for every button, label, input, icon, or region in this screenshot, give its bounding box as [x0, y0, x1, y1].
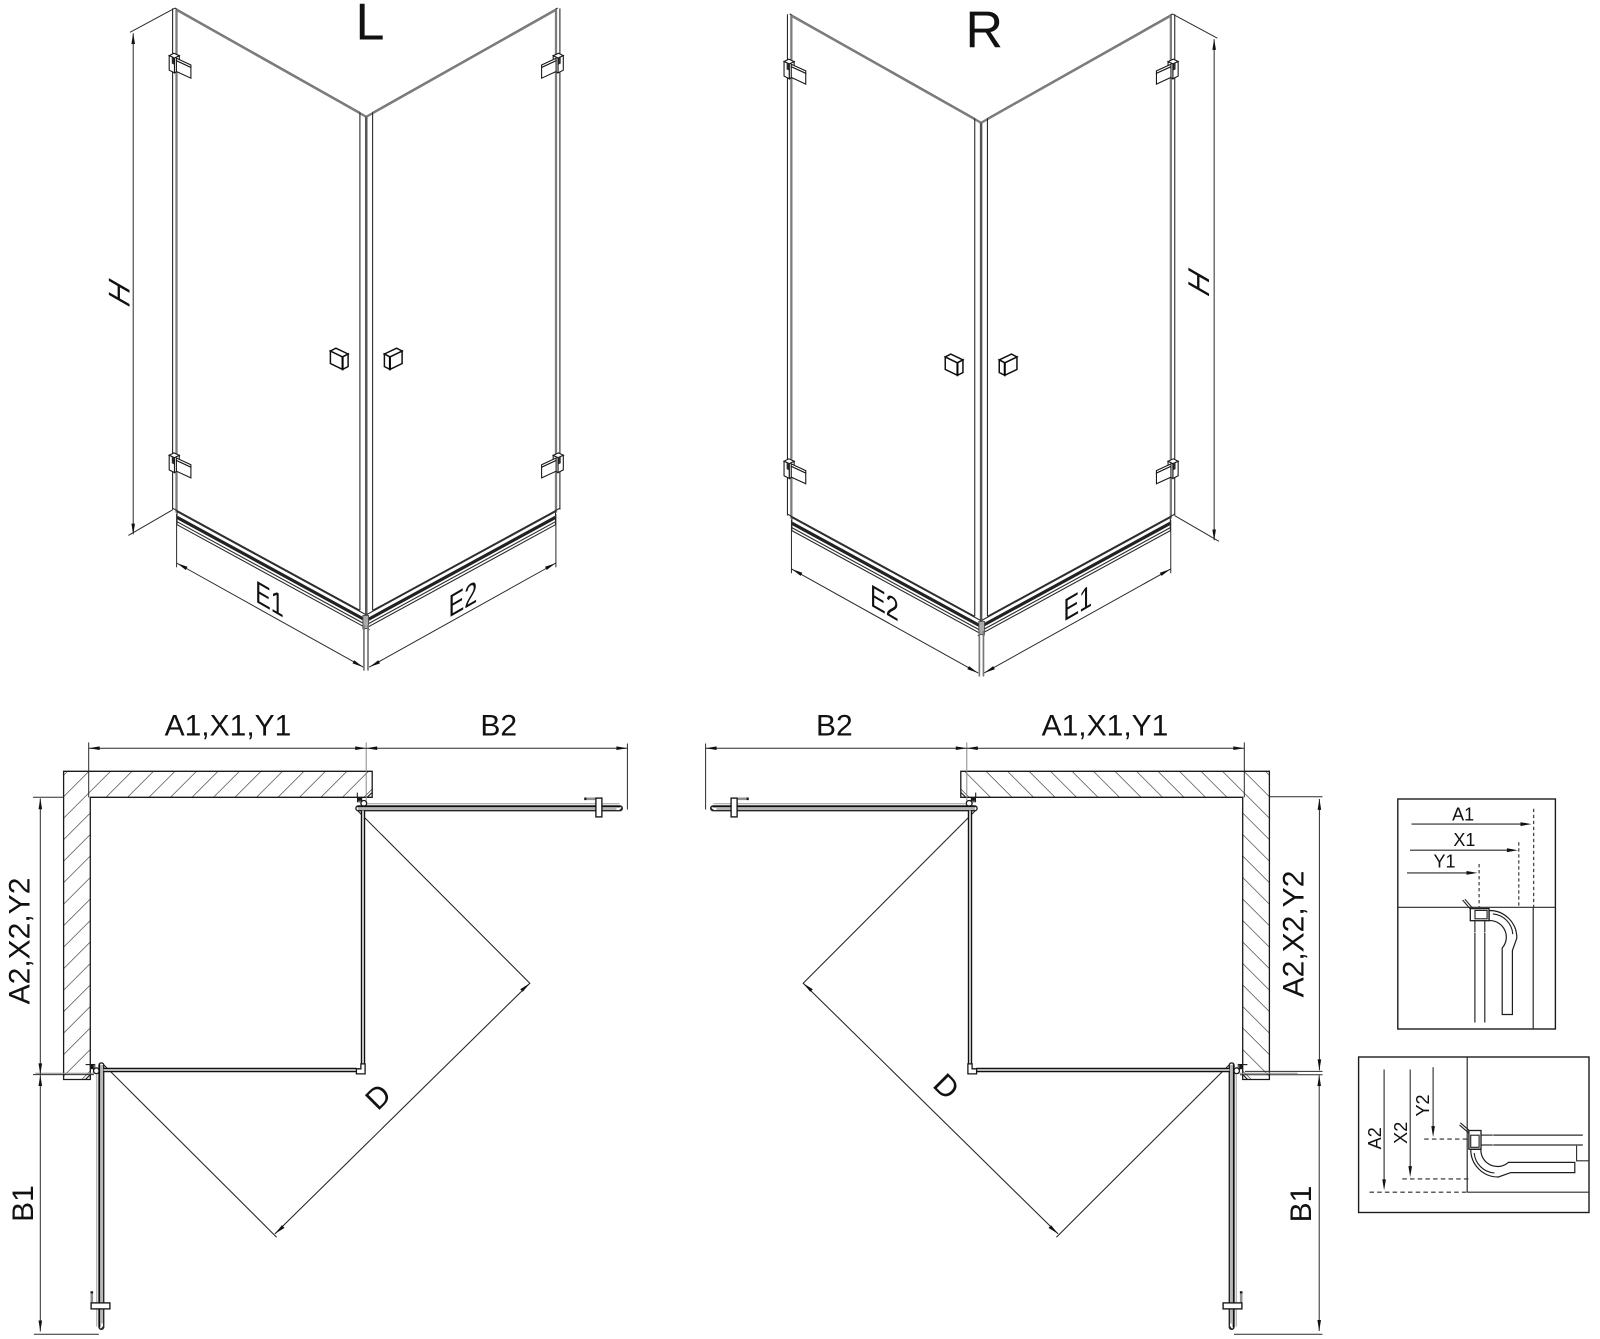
svg-text:Y1: Y1: [1433, 851, 1455, 871]
svg-text:R: R: [966, 2, 1004, 60]
svg-text:D: D: [927, 1068, 966, 1107]
svg-text:X1: X1: [1453, 830, 1475, 850]
svg-text:A2: A2: [1365, 1127, 1385, 1149]
svg-text:A1,X1,Y1: A1,X1,Y1: [165, 710, 292, 743]
svg-text:B2: B2: [816, 710, 853, 743]
svg-text:A2,X2,Y2: A2,X2,Y2: [1278, 871, 1311, 998]
svg-text:A1: A1: [1452, 805, 1474, 825]
svg-text:B2: B2: [480, 710, 517, 743]
svg-text:H: H: [102, 272, 135, 313]
svg-text:E2: E2: [449, 575, 478, 626]
svg-text:H: H: [1182, 262, 1215, 303]
svg-text:A2,X2,Y2: A2,X2,Y2: [4, 878, 37, 1005]
svg-text:L: L: [356, 0, 385, 52]
svg-text:X2: X2: [1391, 1122, 1411, 1144]
svg-text:Y2: Y2: [1413, 1094, 1433, 1116]
svg-text:D: D: [359, 1078, 398, 1117]
svg-text:E1: E1: [255, 575, 284, 626]
svg-text:B1: B1: [1285, 1186, 1318, 1223]
svg-text:A1,X1,Y1: A1,X1,Y1: [1042, 710, 1169, 743]
svg-text:B1: B1: [7, 1185, 40, 1222]
